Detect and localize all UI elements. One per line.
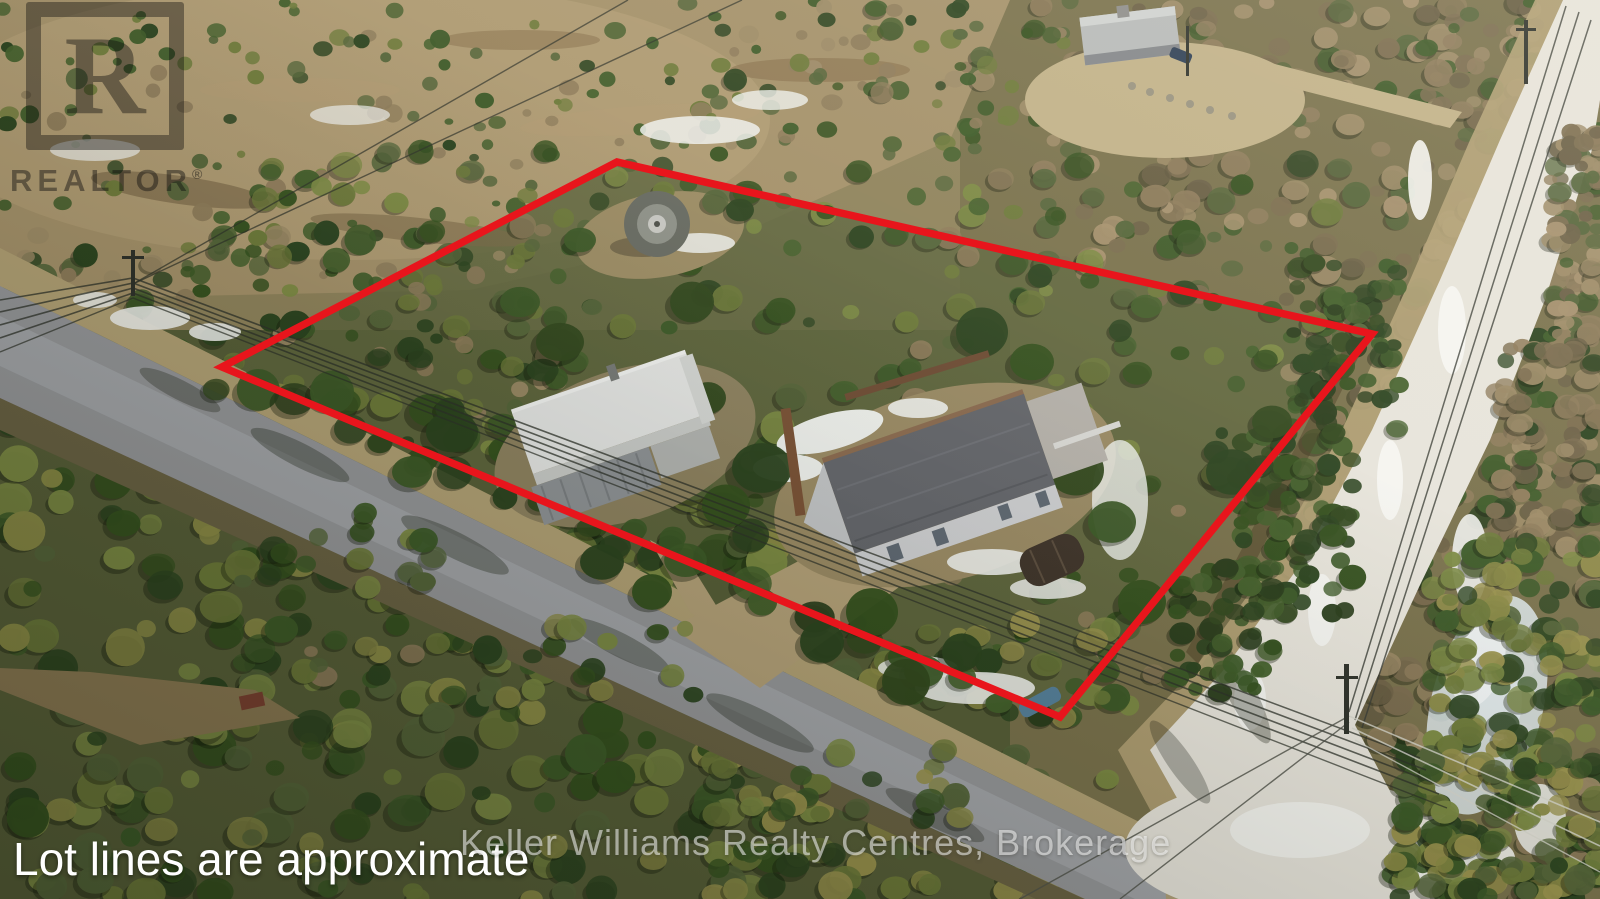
registered-trademark-icon: ® (192, 166, 202, 182)
lot-lines-disclaimer: Lot lines are approximate (13, 832, 530, 886)
realtor-logo-frame: R (26, 2, 184, 150)
aerial-photo: R REALTOR® Lot lines are approximate Kel… (0, 0, 1600, 899)
realtor-logo-r: R (65, 20, 146, 132)
aerial-scene (0, 0, 1600, 899)
realtor-logo-watermark: R REALTOR® (26, 0, 202, 199)
realtor-logo-wordmark: REALTOR® (10, 163, 202, 199)
brokerage-watermark: Keller Williams Realty Centres, Brokerag… (460, 822, 1171, 864)
